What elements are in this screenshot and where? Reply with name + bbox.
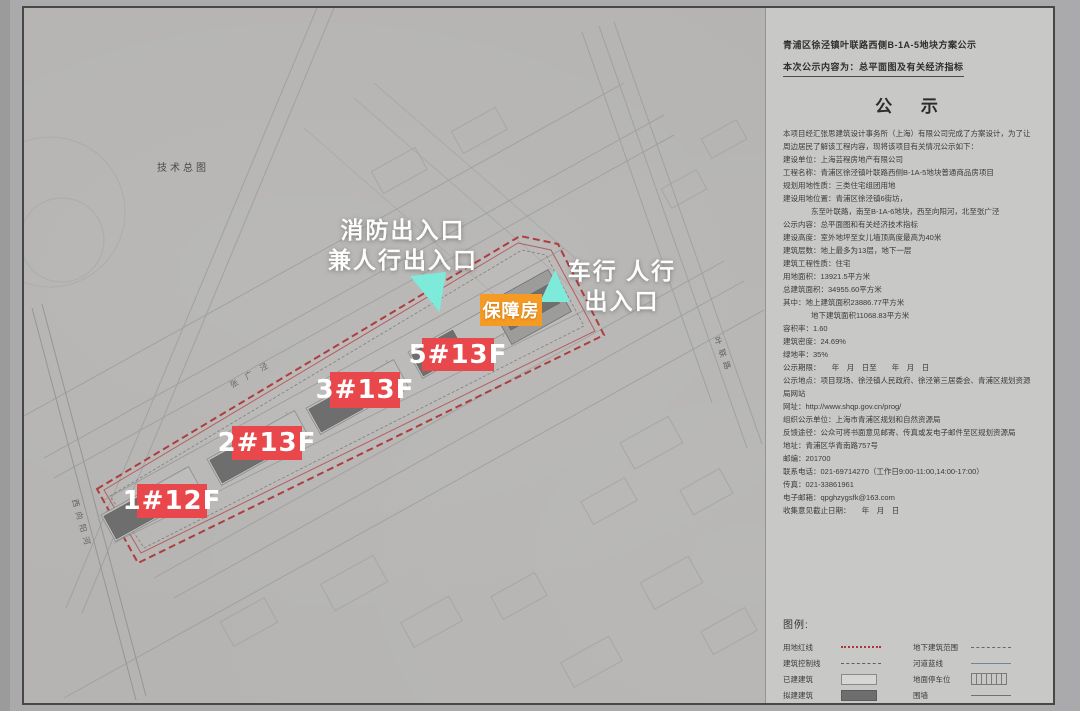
notice-line: 地址：青浦区华青南路757号 [783,439,1036,452]
notice-line: 地下建筑面积11068.83平方米 [783,309,1036,322]
notice-line: 建筑工程性质：住宅 [783,257,1036,270]
notice-line: 公示期限： 年 月 日至 年 月 日 [783,361,1036,374]
notice-line: 反馈途径：公众可将书面意见邮寄、传真或发电子邮件至区规划资源局 [783,426,1036,439]
notice-line: 组织公示单位：上海市青浦区规划和自然资源局 [783,413,1036,426]
legend-right-column: 地下建筑范围 河道蓝线 地面停车位 围墙 [913,639,1043,703]
notice-line: 用地面积：13921.5平方米 [783,270,1036,283]
legend-title: 图例: [783,616,1043,631]
header-content-line: 本次公示内容为：总平面图及有关经济指标 [783,60,964,77]
underground-outline-symbol [971,647,1011,648]
legend-label: 已建建筑 [783,674,841,685]
legend-item: 用地红线 [783,639,913,655]
notice-line: 本项目经汇张思建筑设计事务所（上海）有限公司完成了方案设计，为了让周边居民了解该… [783,127,1036,153]
building-tag-5: 5#13F [422,338,494,371]
notice-line: 总建筑面积：34955.60平方米 [783,283,1036,296]
legend-item: 地下建筑范围 [913,639,1043,655]
notice-body: 本项目经汇张思建筑设计事务所（上海）有限公司完成了方案设计，为了让周边居民了解该… [766,127,1053,517]
building-tag-1: 1#12F [137,484,207,518]
legend-label: 用地红线 [783,642,841,653]
notice-line: 东至叶联路，南至B-1A-6地块，西至向阳河，北至张广泾 [783,205,1036,218]
notice-line: 电子邮箱：qpghzygsfk@163.com [783,491,1036,504]
notice-panel: 青浦区徐泾镇叶联路西侧B-1A-5地块方案公示 本次公示内容为：总平面图及有关经… [765,8,1053,703]
notice-line: 建筑密度：24.69% [783,335,1036,348]
fine-dashed-line-symbol [841,663,881,664]
scan-edge-shadow [0,0,10,711]
notice-line: 建筑层数：地上最多为13层，地下一层 [783,244,1036,257]
red-dashed-line-symbol [841,646,881,648]
legend-label: 河道蓝线 [913,658,971,669]
notice-line: 联系电话：021-69714270（工作日9:00-11:00,14:00-17… [783,465,1036,478]
legend-item: 拟建建筑 [783,687,913,703]
notice-line: 绿地率：35% [783,348,1036,361]
wall-line-symbol [971,695,1011,696]
vehicle-exit-callout: 车行 人行 出入口 [560,256,684,316]
fire-exit-line1: 消防出入口 [320,215,486,245]
fire-exit-line2: 兼人行出入口 [320,245,486,275]
notice-line: 公示地点：项目现场、徐泾镇人民政府、徐泾第三居委会、青浦区规划资源局网站 [783,374,1036,400]
legend-label: 拟建建筑 [783,690,841,701]
vehicle-exit-line1: 车行 人行 [560,256,684,286]
notice-line: 其中：地上建筑面积23886.77平方米 [783,296,1036,309]
building-tag-2: 2#13F [232,426,302,460]
legend: 图例: 用地红线 建筑控制线 已建建筑 [783,616,1043,703]
notice-line: 建设单位：上海芸程房地产有限公司 [783,153,1036,166]
legend-label: 建筑控制线 [783,658,841,669]
river-name-label: 西向阳河 [70,498,94,551]
notice-title: 公 示 [772,92,1053,117]
header-project-line: 青浦区徐泾镇叶联路西侧B-1A-5地块方案公示 [783,38,1036,51]
river-blue-line-symbol [971,663,1011,664]
vehicle-exit-line2: 出入口 [560,286,684,316]
notice-line: 建设高度：室外地坪至女儿墙顶高度最高为40米 [783,231,1036,244]
surface-parking-symbol [971,673,1007,685]
support-housing-tag: 保障房 [480,294,542,326]
legend-item: 围墙 [913,687,1043,703]
legend-item: 地面停车位 [913,671,1043,687]
building-tag-3: 3#13F [330,372,400,408]
notice-line: 工程名称：青浦区徐泾镇叶联路西侧B-1A-5地块普通商品房项目 [783,166,1036,179]
legend-left-column: 用地红线 建筑控制线 已建建筑 拟建建筑 [783,639,913,703]
notice-line: 传真：021-33861961 [783,478,1036,491]
legend-item: 已建建筑 [783,671,913,687]
drawing-sheet: 技术总图 西向阳河 张广泾 叶联路 消防出入口 兼人行出入口 车行 人行 出入口… [22,6,1055,705]
notice-line: 收集意见截止日期： 年 月 日 [783,504,1036,517]
notice-line: 邮编：201700 [783,452,1036,465]
legend-label: 围墙 [913,690,971,701]
notice-line: 公示内容：总平面图和有关经济技术指标 [783,218,1036,231]
sheet-title-label: 技术总图 [157,161,209,174]
notice-line: 网址：http://www.shqp.gov.cn/prog/ [783,400,1036,413]
notice-line: 规划用地性质：三类住宅组团用地 [783,179,1036,192]
existing-building-symbol [841,674,877,685]
legend-item: 河道蓝线 [913,655,1043,671]
notice-line: 建设用地位置：青浦区徐泾镇6街坊， [783,192,1036,205]
legend-label: 地下建筑范围 [913,642,971,653]
legend-item: 建筑控制线 [783,655,913,671]
road-name-label: 叶联路 [712,335,735,375]
notice-line: 容积率：1.60 [783,322,1036,335]
legend-label: 地面停车位 [913,674,971,685]
scanned-planning-notice: { "page": { "header": { "line1": "青浦区徐泾镇… [0,0,1080,711]
proposed-building-symbol [841,690,877,701]
panel-header: 青浦区徐泾镇叶联路西侧B-1A-5地块方案公示 本次公示内容为：总平面图及有关经… [766,8,1053,77]
fire-exit-callout: 消防出入口 兼人行出入口 [320,215,486,275]
